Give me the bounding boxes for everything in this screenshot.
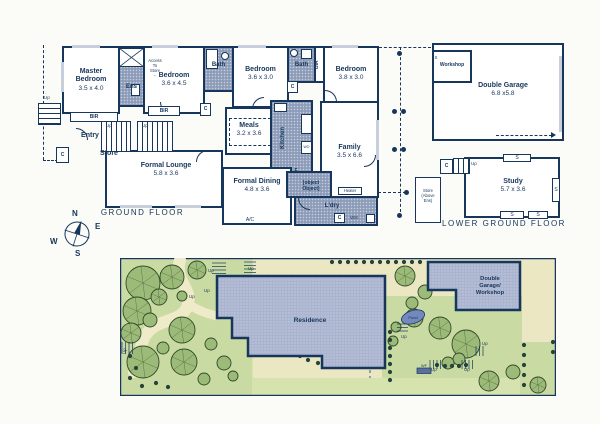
stairs-study [453, 158, 470, 174]
tree [391, 322, 401, 332]
window [332, 45, 358, 48]
shrub [388, 338, 392, 342]
label-store-above-ens: Store (Above Ens) [415, 189, 441, 203]
window [61, 62, 64, 92]
site-up-label: Up [482, 341, 488, 346]
site-up-label: Up [431, 367, 437, 372]
compass-w: W [50, 237, 58, 246]
tree [157, 342, 169, 354]
meter-box [366, 214, 375, 223]
tree [406, 297, 418, 309]
cupboard-laundry: C [334, 213, 345, 223]
shrub [522, 363, 526, 367]
label-kitchen: Kitchen [280, 115, 287, 160]
label-formal-lounge: Formal Lounge 5.8 x 3.6 [138, 162, 194, 178]
heater-label: Heater [344, 189, 357, 193]
label-bedroom-2: Bedroom 3.6 x 4.5 [148, 72, 200, 88]
room-formal-dining [222, 167, 292, 225]
tree [205, 338, 217, 350]
shrub [134, 366, 138, 370]
cupboard-hall: C [200, 103, 211, 116]
heater-box: Heater [338, 187, 362, 195]
kitchen-sink [301, 114, 312, 134]
tree [217, 356, 231, 370]
shrub [140, 384, 144, 388]
shower-icon [119, 48, 144, 67]
bir-label: BIR [90, 115, 99, 120]
study-shelf-top: S [503, 154, 531, 162]
window [238, 45, 266, 48]
shrub [354, 260, 358, 264]
tree [198, 373, 210, 385]
bir-master: BIR [70, 112, 118, 122]
tree [228, 371, 238, 381]
wall-oven: WO [301, 141, 312, 154]
pergola-post [392, 109, 397, 114]
shrub [388, 378, 392, 382]
shrub [388, 330, 392, 334]
shrub [330, 260, 334, 264]
study-shelf-bottom1: S [500, 211, 524, 219]
site-up-label: Up [401, 334, 407, 339]
label-workshop: Workshop [434, 63, 470, 69]
shrub [388, 346, 392, 350]
lower-ground-floor-title: LOWER GROUND FLOOR [438, 220, 570, 228]
toilet [301, 49, 312, 59]
shrub [457, 364, 461, 368]
pergola-post [397, 213, 402, 218]
pergola-post [392, 147, 397, 152]
label-meals: Meals 3.2 x 3.6 [227, 122, 271, 138]
shrub [402, 260, 406, 264]
shrub [410, 260, 414, 264]
label-double-garage: Double Garage 6.8 x5.8 [472, 82, 534, 98]
shrub [388, 354, 392, 358]
window [72, 45, 100, 48]
shrub [522, 373, 526, 377]
compass-s: S [75, 249, 81, 258]
site-garage-label: Garage/ [479, 283, 501, 289]
label-laundry: L'dry [314, 203, 350, 210]
cupboard-bath: C [287, 81, 298, 93]
label-ensuite: Ens [118, 84, 145, 91]
shrub [522, 353, 526, 357]
stairs-entry-porch [38, 103, 61, 125]
residence-label: Residence [294, 317, 327, 324]
site-up-label: Up [204, 288, 210, 293]
label-up-stairs1: Up [106, 124, 112, 129]
shrub [394, 260, 398, 264]
cupboard-entry: C [56, 147, 69, 163]
label-formal-dining: Formal Dining 4.8 x 3.6 [226, 178, 288, 194]
tree [143, 313, 157, 327]
site-up-label: Up [464, 367, 470, 372]
site-up-label: Up [248, 266, 254, 271]
shrub [388, 370, 392, 374]
shrub [154, 381, 158, 385]
label-workshop-shelf: S [433, 56, 439, 61]
pergola-post [401, 109, 406, 114]
garage-entry-dashed-arrow [496, 135, 552, 136]
shrub [362, 260, 366, 264]
tree [506, 365, 520, 379]
study-shelf-right: S [552, 178, 560, 202]
label-wm: WM [348, 216, 360, 221]
window [152, 45, 178, 48]
pergola-dashed-line [378, 192, 406, 193]
shrub [551, 350, 555, 354]
site-plan: Residence Double Garage/ Workshop Pond W… [120, 258, 556, 396]
shrub [346, 260, 350, 264]
cooktop [274, 103, 287, 112]
label-bath-1: Bath [203, 62, 234, 69]
site-garage-label: Workshop [476, 290, 505, 296]
cupboard-study: C [440, 159, 453, 174]
label-up-porch: Up [44, 96, 50, 101]
shrub [418, 260, 422, 264]
arrow-right-icon [551, 132, 556, 138]
shrub [443, 364, 447, 368]
compass-e: E [95, 222, 101, 231]
shrub [388, 362, 392, 366]
garage-door-opening [559, 56, 562, 132]
compass-n: N [72, 209, 78, 218]
label-wip: [object Object] [298, 181, 324, 192]
shrub [316, 361, 320, 365]
label-bir-vertical: BIR [315, 52, 321, 78]
basin [290, 49, 298, 57]
pergola-post [404, 190, 409, 195]
label-entry: Entry [74, 132, 106, 140]
tree [453, 353, 465, 365]
bir-label: BIR [160, 109, 169, 114]
label-up-study: Up [471, 162, 477, 167]
shrub [306, 358, 310, 362]
site-up-label: Up [208, 268, 214, 273]
label-study: Study 5.7 x 3.6 [482, 178, 544, 194]
floor-plan-page: BIR BIR C C C C WO Heater [0, 0, 600, 424]
pond-label: Pond [408, 315, 417, 320]
water-feature [417, 368, 431, 374]
pergola-post [397, 51, 402, 56]
shrub [450, 364, 454, 368]
label-fridge: F [290, 169, 302, 175]
label-master-bedroom: Master Bedroom 3.5 x 4.0 [66, 68, 116, 93]
cupboard-label: C [204, 107, 208, 112]
study-shelf-bottom2: S [528, 211, 548, 219]
cupboard-label: C [61, 153, 65, 158]
label-up-stairs2: Up [142, 124, 148, 129]
shrub [370, 260, 374, 264]
cupboard-label: C [291, 85, 295, 90]
water-feature-label: WF [421, 363, 428, 368]
bir-bed2: BIR [148, 106, 180, 116]
label-store: Store [93, 150, 125, 158]
site-garage-label: Double [480, 276, 500, 282]
shrub [522, 383, 526, 387]
pergola-dashed-line [379, 47, 431, 48]
ground-floor-title: GROUND FLOOR [95, 209, 190, 217]
label-bedroom-4: Bedroom 3.8 x 3.0 [325, 66, 377, 82]
shrub [551, 340, 555, 344]
label-ac: A/C [240, 218, 260, 224]
shrub [166, 385, 170, 389]
shrub [338, 260, 342, 264]
shrub [378, 260, 382, 264]
label-bedroom-3: Bedroom 3.6 x 3.0 [234, 66, 287, 82]
shrub [128, 376, 132, 380]
site-up-label: Up [122, 348, 127, 354]
basin [221, 52, 229, 60]
site-up-label: Up [189, 294, 195, 299]
label-family: Family 3.5 x 6.6 [322, 144, 377, 160]
shrub [128, 354, 132, 358]
wall-oven-label: WO [303, 146, 309, 150]
shrub [386, 260, 390, 264]
label-bath-2: Bath [287, 62, 316, 69]
shrub [522, 343, 526, 347]
tree [177, 291, 187, 301]
cupboard-label: C [338, 216, 342, 221]
pergola-post [401, 147, 406, 152]
